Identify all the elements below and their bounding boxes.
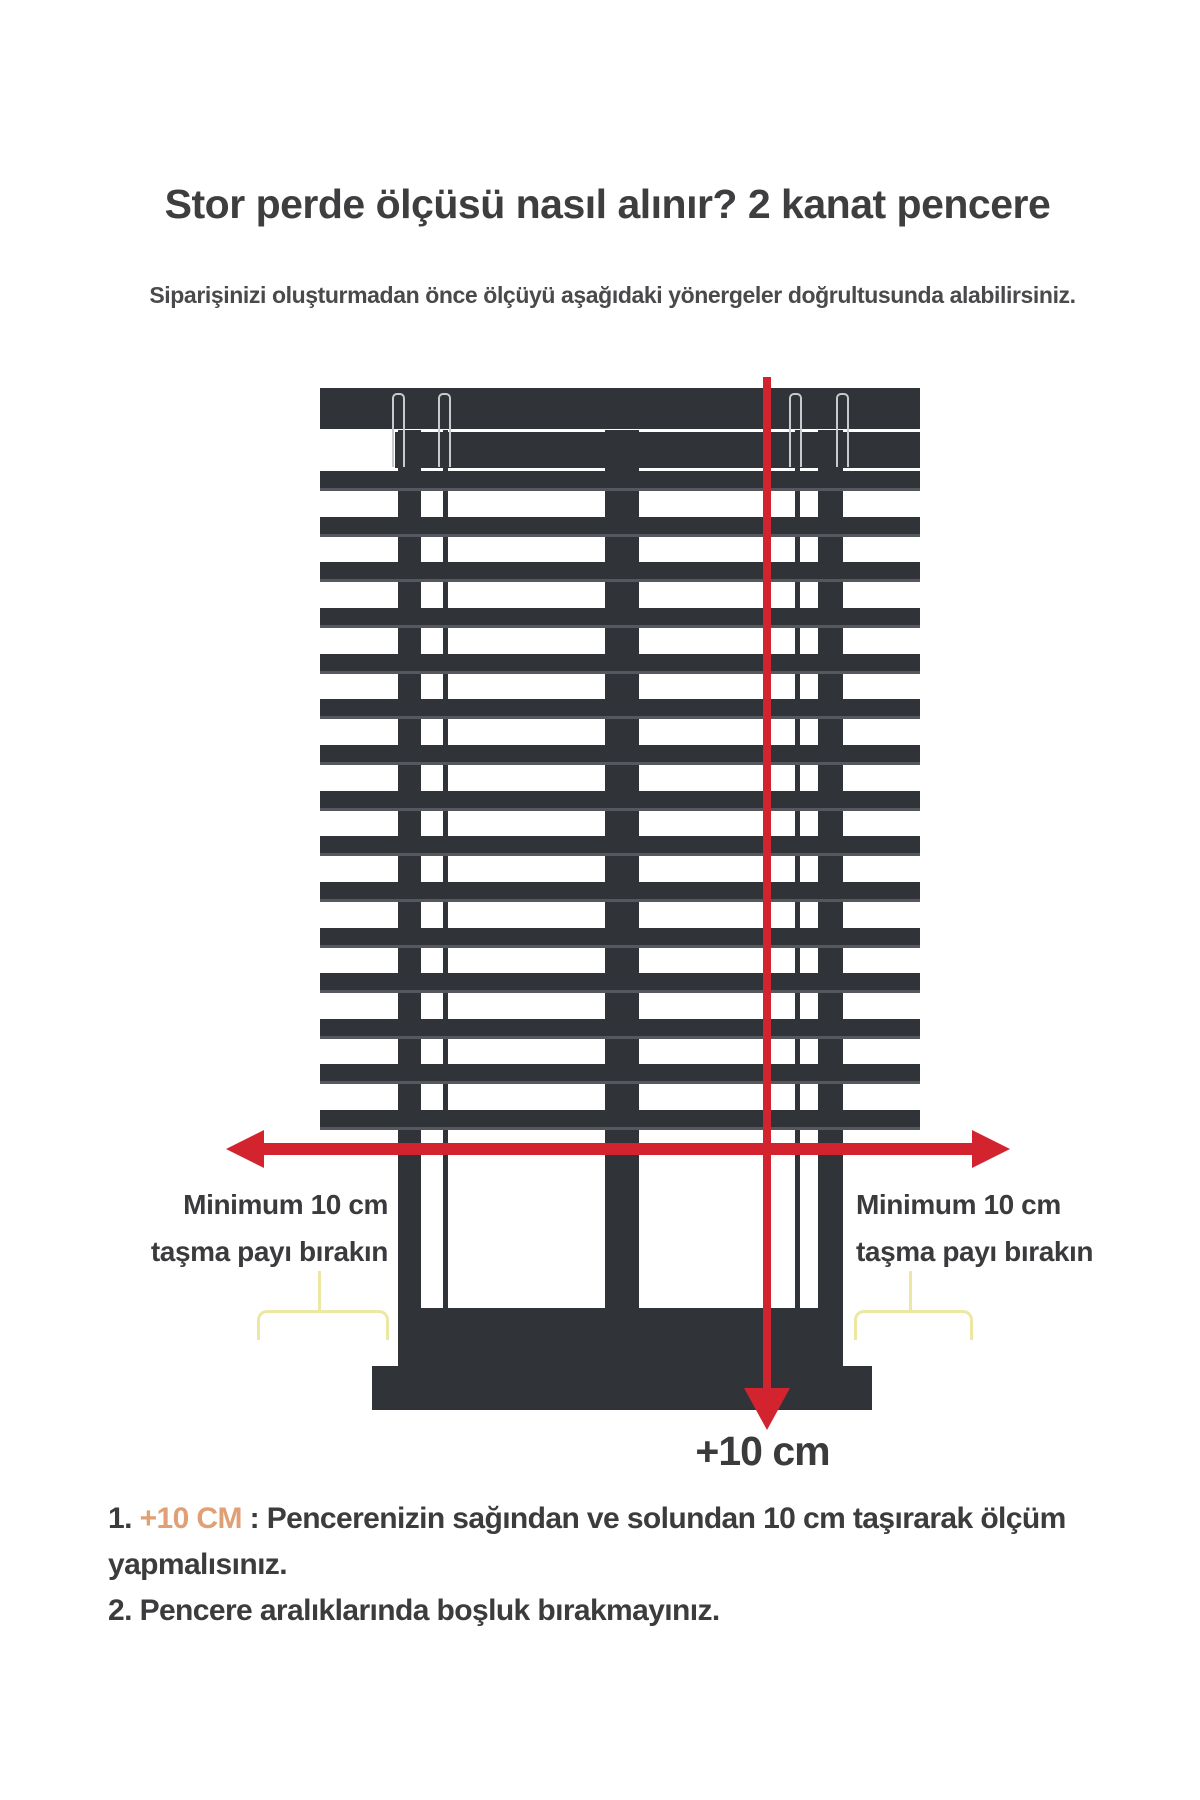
right-brace-icon <box>854 1310 973 1340</box>
blind-slat <box>320 471 920 491</box>
blind-ladder-cord <box>392 393 405 467</box>
blind-slat <box>320 562 920 582</box>
left-overhang-label: Minimum 10 cm taşma payı bırakın <box>150 1181 388 1275</box>
blind-measurement-guide: Stor perde ölçüsü nasıl alınır? 2 kanat … <box>0 0 1200 1800</box>
page-subtitle: Siparişinizi oluşturmadan önce ölçüyü aş… <box>0 282 1200 309</box>
footnote-2-number: 2. <box>108 1594 140 1627</box>
blind-slat <box>320 745 920 765</box>
left-brace-stem <box>318 1271 321 1310</box>
arrow-down-icon <box>744 1388 790 1430</box>
bottom-arrow-label: +10 cm <box>690 1428 835 1475</box>
footnotes: 1. +10 CM : Pencerenizin sağından ve sol… <box>108 1496 1168 1634</box>
page-title: Stor perde ölçüsü nasıl alınır? 2 kanat … <box>0 181 1200 228</box>
window-sill <box>372 1366 872 1410</box>
blind-slat <box>320 928 920 948</box>
blind-slat <box>320 699 920 719</box>
blind-slat <box>320 517 920 537</box>
left-overhang-label-line2: taşma payı bırakın <box>150 1228 388 1275</box>
blind-slat <box>320 1019 920 1039</box>
right-overhang-label: Minimum 10 cm taşma payı bırakın <box>856 1181 1116 1275</box>
blind-slat <box>320 654 920 674</box>
blind-slat <box>320 836 920 856</box>
footnote-1-number: 1. <box>108 1502 140 1535</box>
blind-ladder-cord <box>789 393 802 467</box>
left-brace-icon <box>257 1310 389 1340</box>
blind-ladder-cord <box>836 393 849 467</box>
blind-headrail <box>320 388 920 429</box>
blind-ladder-cord <box>438 393 451 467</box>
horizontal-measure-arrow-line <box>240 1143 990 1155</box>
footnote-2: 2. Pencere aralıklarında boşluk bırakmay… <box>108 1588 1168 1634</box>
right-brace-stem <box>909 1271 912 1310</box>
blind-slat <box>320 882 920 902</box>
blind-slat <box>320 608 920 628</box>
footnote-1-text: : Pencerenizin sağından ve solundan 10 c… <box>108 1502 1066 1581</box>
blind-slat <box>320 791 920 811</box>
window-bottom-rail <box>398 1308 843 1366</box>
blind-slat <box>320 973 920 993</box>
footnote-1-highlight: +10 CM <box>140 1502 242 1535</box>
footnote-2-text: Pencere aralıklarında boşluk bırakmayını… <box>140 1594 720 1627</box>
right-overhang-label-line1: Minimum 10 cm <box>856 1181 1116 1228</box>
right-overhang-label-line2: taşma payı bırakın <box>856 1228 1116 1275</box>
footnote-1: 1. +10 CM : Pencerenizin sağından ve sol… <box>108 1496 1168 1588</box>
vertical-measure-arrow-line <box>763 377 771 1388</box>
arrow-left-icon <box>226 1130 264 1168</box>
blind-slat <box>320 1110 920 1130</box>
left-overhang-label-line1: Minimum 10 cm <box>150 1181 388 1228</box>
arrow-right-icon <box>972 1130 1010 1168</box>
blind-slat <box>320 1064 920 1084</box>
